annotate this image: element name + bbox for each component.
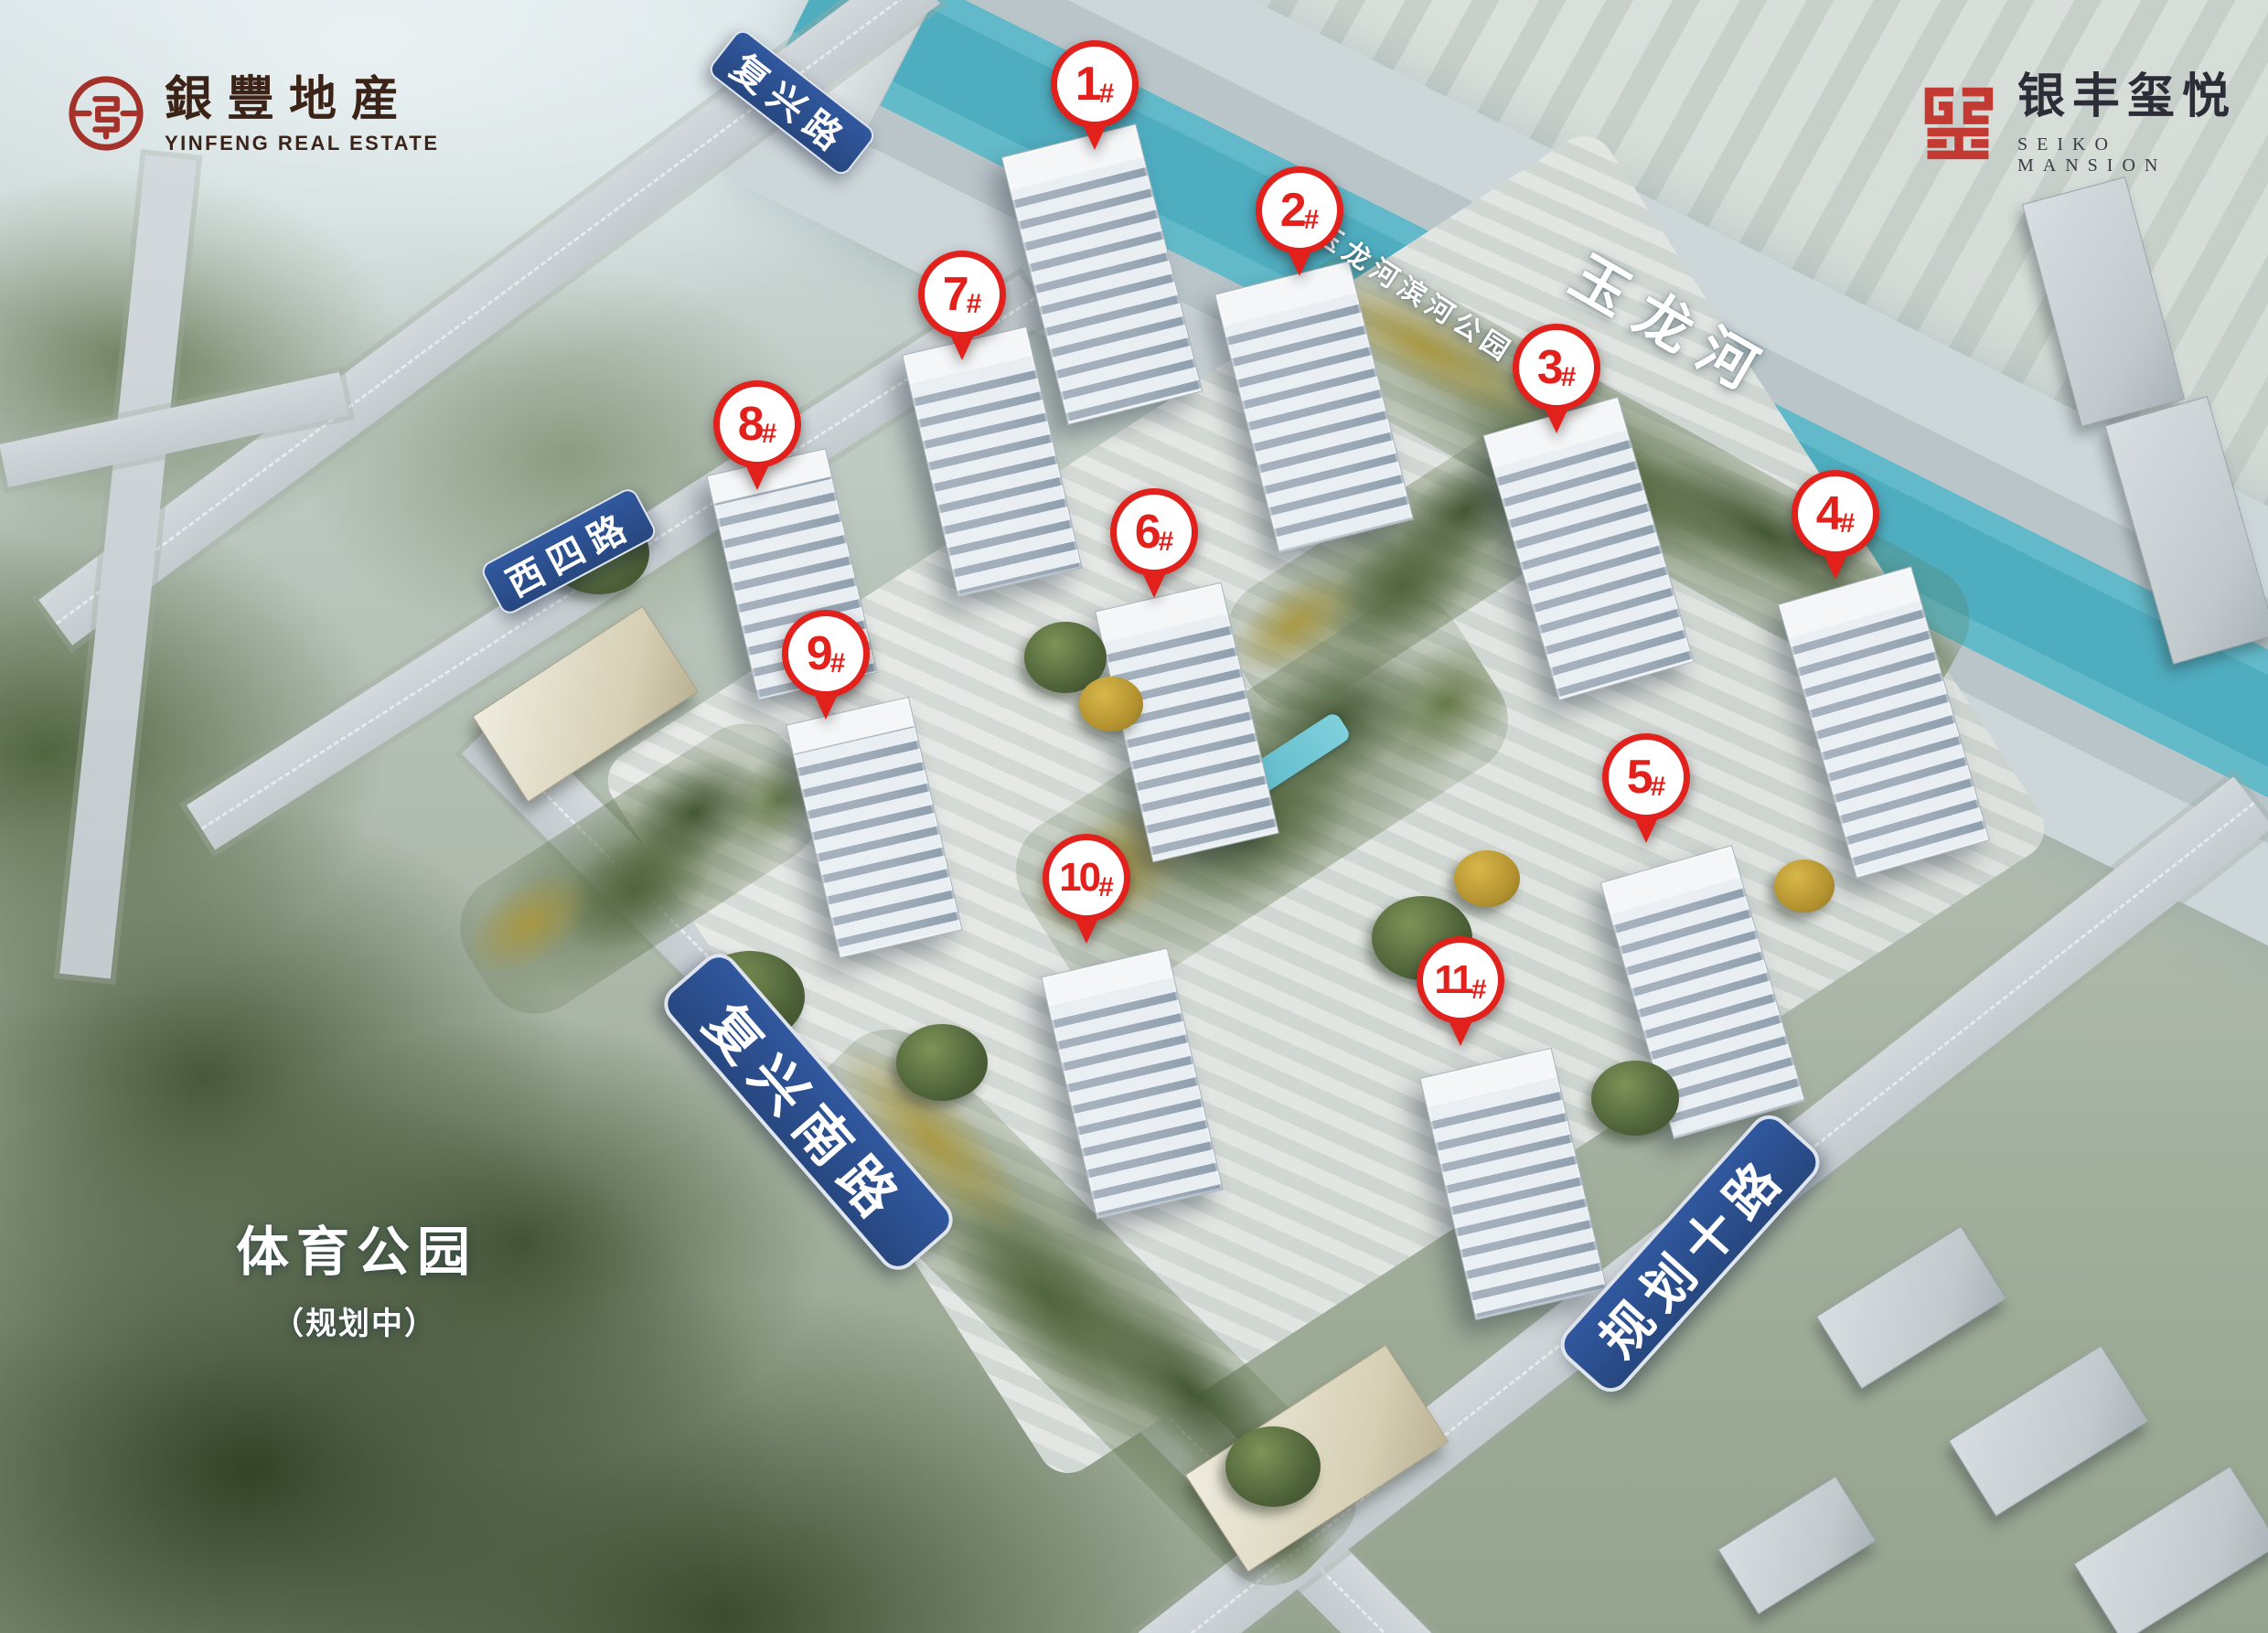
project-name-en: SEIKO MANSION <box>2017 134 2268 176</box>
marker-number: 9 <box>807 630 830 678</box>
marker-bubble: 6# <box>1110 488 1198 576</box>
marker-number: 1 <box>1075 60 1099 108</box>
building-marker-5: 5# <box>1602 733 1690 821</box>
developer-seal-icon <box>66 73 146 158</box>
marker-hash: # <box>1099 80 1115 108</box>
marker-bubble: 10# <box>1043 834 1130 922</box>
building-marker-1: 1# <box>1051 40 1139 128</box>
marker-number: 8 <box>738 400 762 448</box>
building-marker-4: 4# <box>1792 470 1879 558</box>
marker-bubble: 11# <box>1417 936 1504 1024</box>
building-marker-11: 11# <box>1417 936 1504 1024</box>
marker-hash: # <box>762 421 777 448</box>
marker-bubble: 7# <box>918 251 1006 338</box>
marker-number: 4 <box>1816 490 1840 538</box>
project-mark-icon <box>1919 83 1997 166</box>
marker-hash: # <box>1561 364 1577 391</box>
marker-number: 10 <box>1059 858 1098 898</box>
marker-hash: # <box>1840 510 1856 538</box>
tree-cluster <box>1079 677 1143 731</box>
marker-hash: # <box>830 650 846 678</box>
tree-cluster <box>1774 859 1835 913</box>
building-marker-7: 7# <box>918 251 1006 338</box>
marker-bubble: 1# <box>1051 40 1139 128</box>
building-marker-9: 9# <box>782 610 870 698</box>
marker-hash: # <box>967 291 982 318</box>
marker-number: 11 <box>1434 960 1471 1000</box>
marker-bubble: 9# <box>782 610 870 698</box>
building-marker-6: 6# <box>1110 488 1198 576</box>
aerial-site-plan: 复兴路 西四路 复兴南路 规划十路 玉龙河 玉龙河滨河公园 体育公园 （规划中）… <box>0 0 2268 1633</box>
developer-name-en: YINFENG REAL ESTATE <box>165 132 440 155</box>
marker-bubble: 3# <box>1513 324 1600 411</box>
marker-number: 6 <box>1135 508 1159 556</box>
developer-name-cn: 銀豐地産 <box>165 76 440 126</box>
building-marker-8: 8# <box>713 380 801 468</box>
developer-logo: 銀豐地産 YINFENG REAL ESTATE <box>66 73 440 158</box>
marker-hash: # <box>1098 874 1114 902</box>
marker-hash: # <box>1651 774 1666 801</box>
marker-bubble: 2# <box>1256 166 1343 254</box>
marker-number: 3 <box>1537 344 1561 391</box>
marker-number: 2 <box>1280 187 1304 234</box>
project-logo: 银丰玺悦 SEIKO MANSION <box>1919 73 2268 176</box>
marker-hash: # <box>1304 207 1320 234</box>
tree-cluster <box>1225 1426 1321 1507</box>
sports-park-title: 体育公园 <box>236 1209 477 1286</box>
sports-park-label: 体育公园 （规划中） <box>236 1209 477 1343</box>
marker-bubble: 8# <box>713 380 801 468</box>
tree-cluster <box>1454 850 1520 907</box>
marker-bubble: 4# <box>1792 470 1879 558</box>
tree-cluster <box>896 1024 988 1101</box>
marker-number: 5 <box>1627 753 1651 801</box>
marker-hash: # <box>1159 528 1174 556</box>
marker-number: 7 <box>943 271 967 318</box>
sports-park-subtitle: （规划中） <box>273 1298 477 1343</box>
project-name-cn: 银丰玺悦 <box>2017 73 2268 123</box>
building-marker-3: 3# <box>1513 324 1600 411</box>
building-marker-10: 10# <box>1043 834 1130 922</box>
marker-hash: # <box>1471 977 1487 1004</box>
building-marker-2: 2# <box>1256 166 1343 254</box>
marker-bubble: 5# <box>1602 733 1690 821</box>
tree-cluster <box>1591 1061 1679 1136</box>
